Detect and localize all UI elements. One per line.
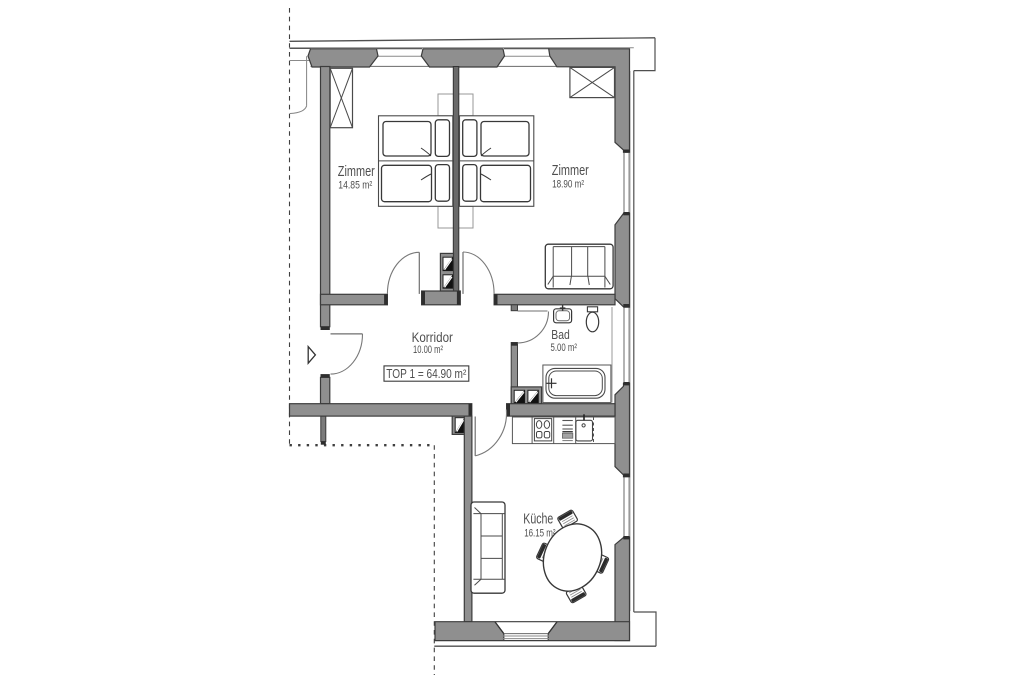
svg-text:10.00 m²: 10.00 m² <box>413 344 443 356</box>
svg-text:16.15 m²: 16.15 m² <box>524 528 556 540</box>
svg-text:Bad: Bad <box>551 327 570 342</box>
svg-text:Zimmer: Zimmer <box>338 164 375 180</box>
svg-text:18.90 m²: 18.90 m² <box>552 179 584 191</box>
svg-text:Zimmer: Zimmer <box>552 163 589 179</box>
svg-text:14.85 m²: 14.85 m² <box>338 179 372 191</box>
svg-text:5.00 m²: 5.00 m² <box>551 342 578 354</box>
svg-text:TOP 1 = 64.90 m²: TOP 1 = 64.90 m² <box>386 366 467 381</box>
svg-text:Küche: Küche <box>523 511 553 527</box>
